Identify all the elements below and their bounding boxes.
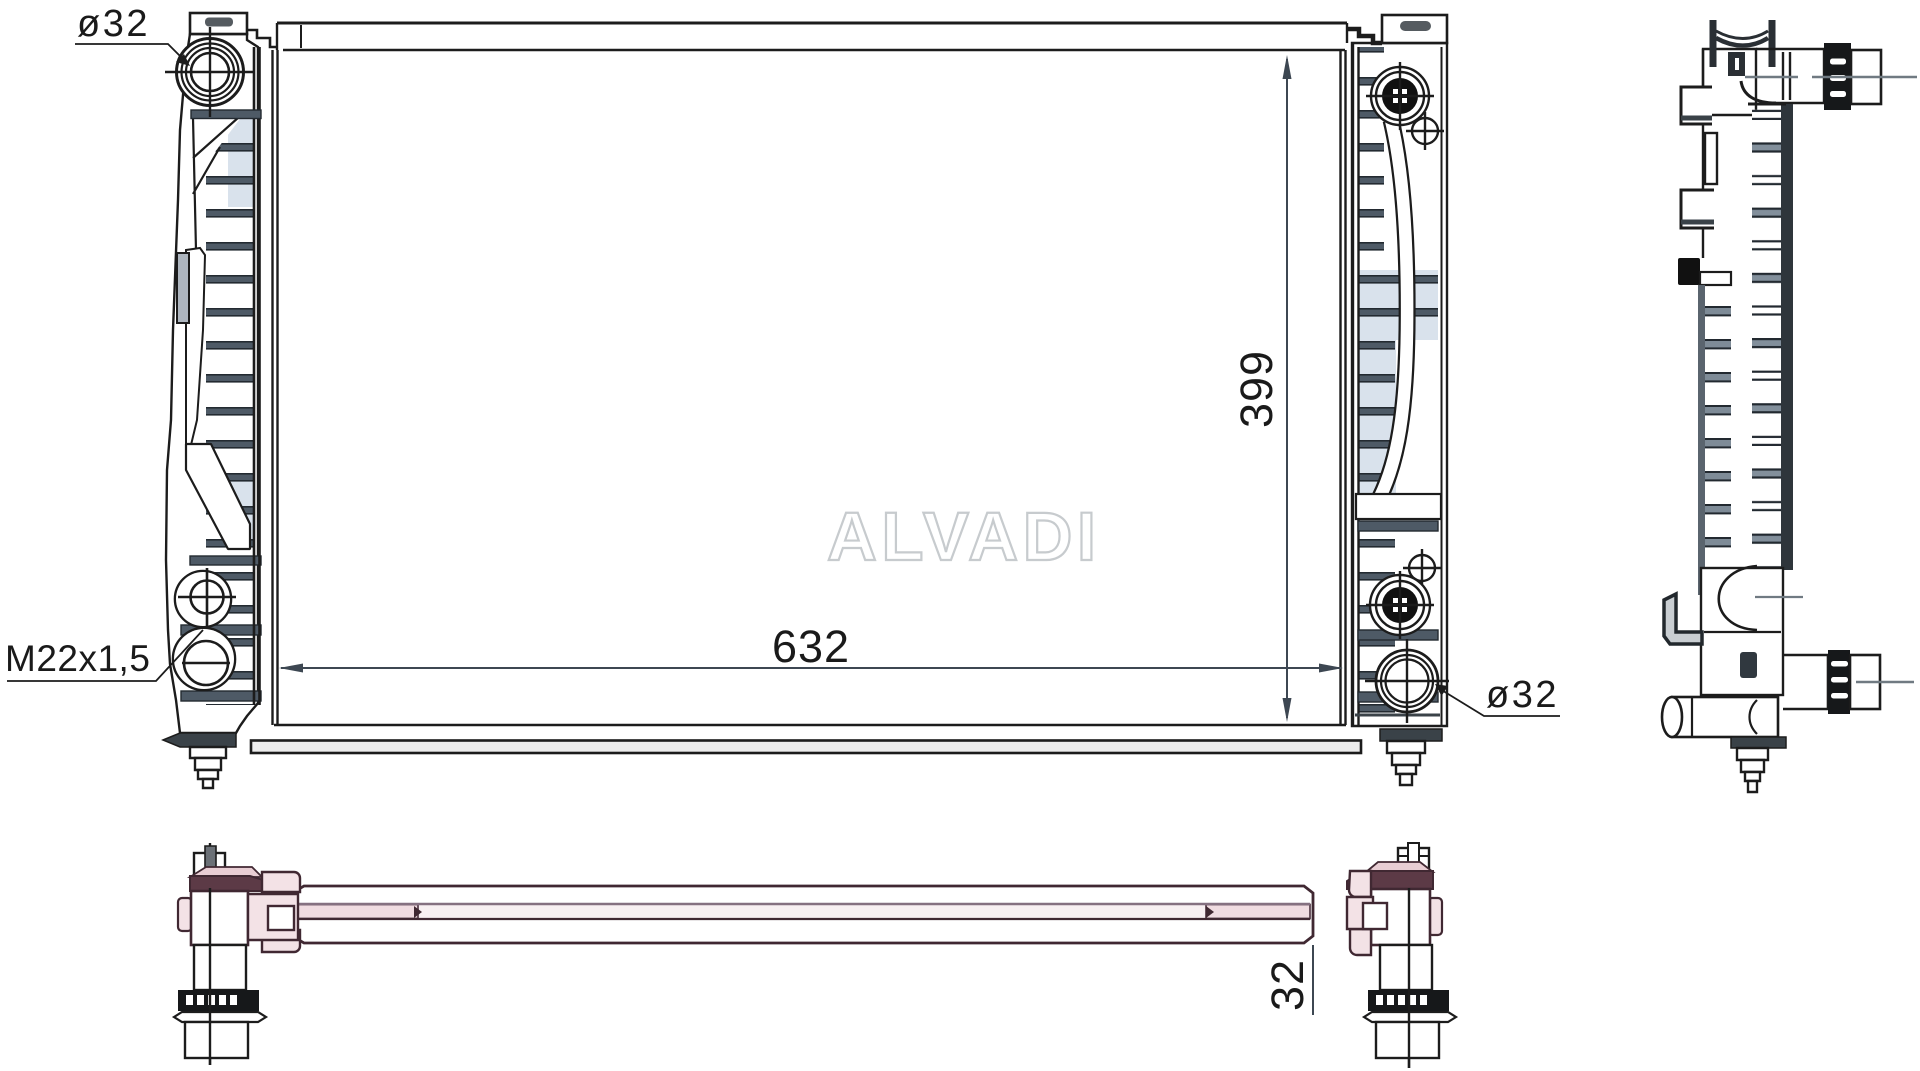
svg-text:399: 399: [1231, 350, 1282, 428]
svg-text:ALVADI: ALVADI: [827, 498, 1101, 575]
svg-text:ø32: ø32: [1486, 674, 1559, 716]
svg-text:M22x1,5: M22x1,5: [5, 638, 150, 679]
svg-text:ø32: ø32: [77, 3, 150, 45]
svg-text:632: 632: [772, 621, 850, 672]
svg-text:32: 32: [1262, 959, 1313, 1011]
